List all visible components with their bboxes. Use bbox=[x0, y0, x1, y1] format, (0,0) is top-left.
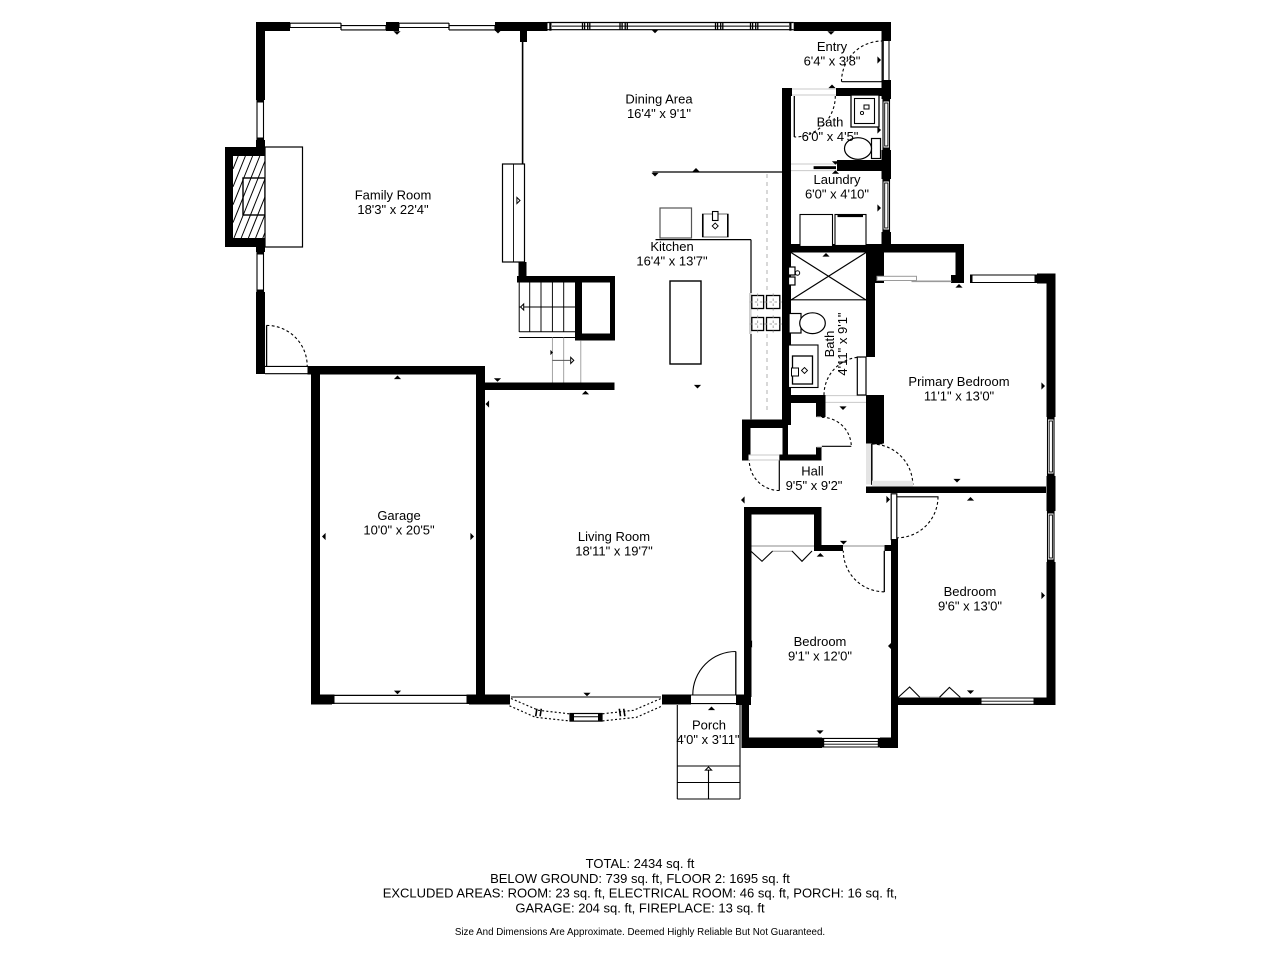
svg-text:Bedroom: Bedroom bbox=[944, 584, 997, 599]
svg-text:Bedroom: Bedroom bbox=[794, 634, 847, 649]
svg-text:EXCLUDED AREAS: ROOM: 23 sq. f: EXCLUDED AREAS: ROOM: 23 sq. ft, ELECTRI… bbox=[383, 886, 898, 901]
svg-text:Size And Dimensions Are Approx: Size And Dimensions Are Approximate. Dee… bbox=[455, 927, 825, 938]
svg-text:6'0" x 4'5": 6'0" x 4'5" bbox=[802, 129, 859, 144]
svg-text:6'0" x 4'10": 6'0" x 4'10" bbox=[805, 186, 869, 201]
svg-text:16'4" x 13'7": 16'4" x 13'7" bbox=[636, 253, 708, 268]
svg-text:4'11" x 9'1": 4'11" x 9'1" bbox=[835, 312, 850, 375]
svg-text:11'1" x 13'0": 11'1" x 13'0" bbox=[924, 388, 995, 403]
svg-text:Laundry: Laundry bbox=[814, 172, 861, 187]
svg-text:Bath: Bath bbox=[817, 114, 844, 129]
svg-text:Dining Area: Dining Area bbox=[625, 92, 693, 107]
svg-text:Entry: Entry bbox=[817, 39, 848, 54]
svg-text:Primary Bedroom: Primary Bedroom bbox=[908, 374, 1009, 389]
svg-text:Hall: Hall bbox=[801, 463, 824, 478]
svg-text:9'1" x 12'0": 9'1" x 12'0" bbox=[788, 648, 852, 663]
svg-text:18'3" x 22'4": 18'3" x 22'4" bbox=[357, 202, 429, 217]
svg-text:18'11" x 19'7": 18'11" x 19'7" bbox=[575, 543, 653, 558]
svg-text:9'6" x 13'0": 9'6" x 13'0" bbox=[938, 598, 1002, 613]
svg-text:GARAGE: 204 sq. ft, FIREPLACE:: GARAGE: 204 sq. ft, FIREPLACE: 13 sq. ft bbox=[515, 900, 765, 915]
svg-text:BELOW GROUND: 739 sq. ft, FLOO: BELOW GROUND: 739 sq. ft, FLOOR 2: 1695 … bbox=[490, 871, 790, 886]
svg-text:TOTAL: 2434 sq. ft: TOTAL: 2434 sq. ft bbox=[586, 856, 695, 871]
svg-text:9'5" x 9'2": 9'5" x 9'2" bbox=[786, 478, 843, 493]
svg-text:16'4" x 9'1": 16'4" x 9'1" bbox=[627, 106, 691, 121]
svg-text:6'4" x 3'8": 6'4" x 3'8" bbox=[804, 53, 861, 68]
svg-text:4'0" x 3'11": 4'0" x 3'11" bbox=[676, 732, 739, 747]
svg-text:Living Room: Living Room bbox=[578, 529, 650, 544]
svg-text:10'0" x 20'5": 10'0" x 20'5" bbox=[363, 522, 435, 537]
svg-text:Family Room: Family Room bbox=[355, 187, 432, 202]
svg-text:Kitchen: Kitchen bbox=[650, 239, 693, 254]
svg-text:Porch: Porch bbox=[692, 717, 726, 732]
svg-text:Garage: Garage bbox=[377, 508, 420, 523]
